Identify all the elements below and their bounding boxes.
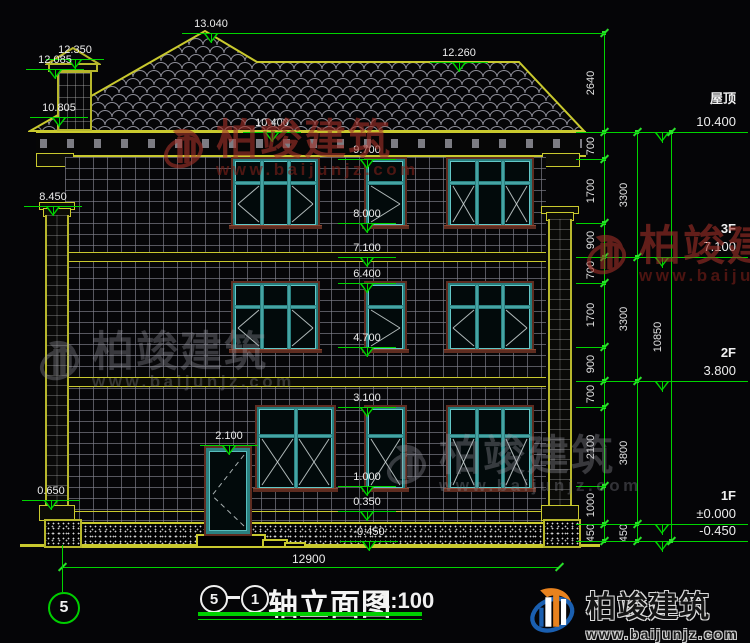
window (448, 159, 532, 227)
elevation-marker-text: -0.450 (340, 526, 398, 538)
dim-node (669, 130, 673, 134)
level-value: 10.400 (666, 114, 736, 129)
dim-value: 3300 (618, 155, 632, 235)
level-tail (662, 382, 663, 392)
elevation-marker-tail (51, 501, 52, 510)
brand-logo-text: 柏竣建筑 (586, 582, 739, 626)
elevation-marker-tail (367, 487, 368, 496)
elevation-marker-tail (367, 408, 368, 417)
level-label: 屋顶 (666, 88, 736, 107)
roof (28, 29, 588, 133)
window-sill (253, 488, 338, 492)
elevation-marker-tail (59, 118, 60, 127)
title-axis-start: 5 (210, 591, 218, 608)
floor-band-3f (65, 252, 546, 262)
door-step-2 (284, 542, 306, 546)
window-sill (229, 225, 322, 229)
floor-band-2f (65, 377, 546, 387)
elevation-marker-tail (367, 284, 368, 293)
level-tail (662, 542, 663, 552)
level-value: -0.450 (666, 523, 736, 538)
dim-value: 3800 (618, 413, 632, 493)
elevation-marker-text: 1.000 (338, 471, 396, 483)
water-table-line (65, 511, 546, 512)
extension-line (576, 381, 648, 382)
elevation-marker-text: 13.040 (182, 18, 240, 30)
brand-logo-icon (528, 585, 580, 639)
dim-value: 10850 (652, 297, 666, 377)
elevation-marker-tail (367, 258, 368, 267)
left-pedestal (44, 519, 82, 548)
extension-line (208, 33, 606, 34)
elevation-marker-text: 9.700 (338, 144, 396, 156)
dim-chain-inner-line (604, 33, 605, 541)
elevation-marker-tail (367, 348, 368, 357)
title-axis-end-bubble: 1 (241, 585, 269, 613)
elevation-marker-tail (459, 63, 460, 72)
title-underline-thick (198, 612, 422, 616)
elevation-marker-text: 10.805 (30, 102, 88, 114)
elevation-marker-tail (229, 446, 230, 455)
dim-chain-outer-line (671, 132, 672, 541)
brand-logo: 柏竣建筑 www.baijunjz.com (528, 582, 739, 642)
title-underline-thin (198, 619, 422, 620)
dim-value: 3300 (618, 279, 632, 359)
extension-line (576, 347, 606, 348)
drawing-scale: 1:100 (378, 588, 434, 614)
window-sill (444, 349, 536, 353)
window (448, 407, 532, 490)
elevation-marker-tail (53, 207, 54, 216)
elevation-marker-tail (367, 160, 368, 169)
elevation-marker-text: 3.100 (338, 392, 396, 404)
axis-bubble: 5 (48, 592, 80, 624)
elevation-marker-tail (211, 34, 212, 43)
elevation-marker-text: 2.100 (200, 430, 258, 442)
dim-node (669, 539, 673, 543)
left-pilaster (45, 215, 69, 505)
extension-line (576, 524, 648, 525)
extension-line (576, 159, 606, 160)
level-label: 1F (666, 488, 736, 503)
dim-chain-middle-line (637, 132, 638, 541)
overall-dim-line (62, 567, 560, 568)
dentil-blocks (40, 139, 582, 148)
level-tail (662, 258, 663, 268)
extension-line (576, 257, 648, 258)
eave-cornice (36, 131, 586, 157)
extension-line (576, 407, 606, 408)
cad-elevation-drawing: 12.35012.08510.8058.4500.65013.04012.260… (0, 0, 750, 643)
dim-value: 450 (585, 493, 599, 573)
elevation-marker-text: 12.085 (26, 54, 84, 66)
window (233, 283, 318, 351)
overall-dim-text: 12900 (292, 553, 325, 565)
window-sill (229, 349, 322, 353)
brand-logo-site: www.baijunjz.com (586, 626, 739, 642)
level-value: 3.800 (666, 363, 736, 378)
dim-value: 450 (618, 493, 632, 573)
extension-line (576, 486, 606, 487)
elevation-marker-text: 10.400 (243, 117, 301, 129)
elevation-marker-text: 8.000 (338, 208, 396, 220)
window-sill (444, 488, 536, 492)
drawing-title: 轴立面图 (268, 580, 392, 624)
elevation-marker-tail (55, 70, 56, 79)
extension-line (576, 283, 606, 284)
window (257, 407, 334, 490)
elevation-marker-tail (367, 224, 368, 233)
watermark-site: www.baijunjz.com (639, 266, 750, 286)
level-label: 2F (666, 345, 736, 360)
elevation-marker-text: 6.400 (338, 268, 396, 280)
extension-line (576, 223, 606, 224)
entry-door (206, 448, 250, 534)
elevation-marker-text: 0.350 (338, 496, 396, 508)
elevation-marker-text: 7.100 (338, 242, 396, 254)
elevation-marker-text: 4.700 (338, 332, 396, 344)
level-label: 3F (666, 221, 736, 236)
dim-tick (555, 562, 564, 571)
axis-bubble-number: 5 (60, 599, 69, 617)
window-sill (444, 225, 536, 229)
level-value: 7.100 (666, 239, 736, 254)
ground-line (20, 544, 600, 547)
level-tail (662, 133, 663, 143)
window (233, 159, 318, 227)
extension-line (576, 541, 648, 542)
window (448, 283, 532, 351)
elevation-marker-tail (367, 512, 368, 521)
level-value: ±0.000 (666, 506, 736, 521)
title-axis-end: 1 (251, 591, 259, 608)
elevation-marker-text: 0.650 (22, 485, 80, 497)
elevation-marker-tail (272, 133, 273, 142)
right-pilaster (548, 219, 572, 505)
extension-line (576, 132, 648, 133)
axis-leader (62, 545, 63, 592)
title-axis-dash (226, 596, 240, 599)
level-tail (662, 525, 663, 535)
right-eave-capital (542, 153, 580, 167)
elevation-marker-text: 12.260 (430, 47, 488, 59)
title-axis-start-bubble: 5 (200, 585, 228, 613)
elevation-marker-text: 8.450 (24, 191, 82, 203)
elevation-marker-tail (369, 542, 370, 551)
